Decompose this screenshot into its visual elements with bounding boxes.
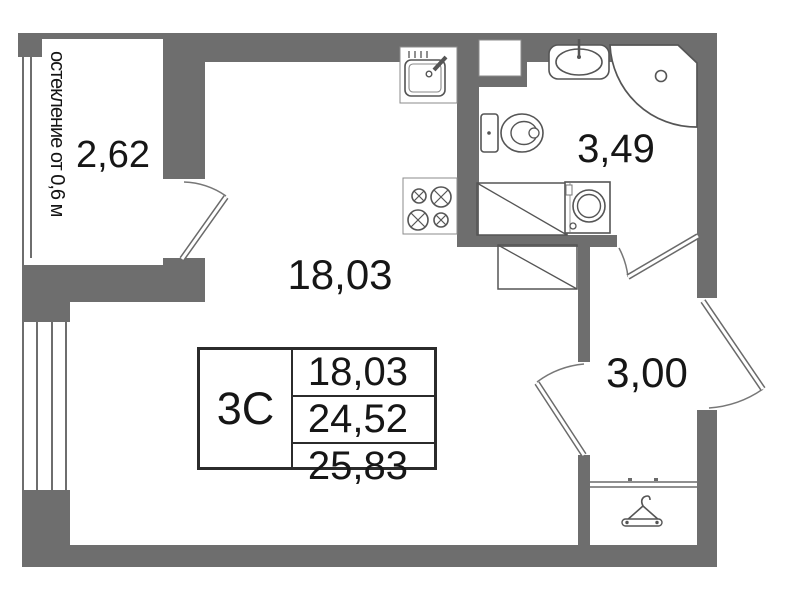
- hallway-area-label: 3,00: [604, 351, 690, 395]
- unit-type-cell: 3С: [200, 350, 293, 467]
- washing-machine-icon: [565, 182, 610, 233]
- unit-legend-table: 3С 18,03 24,52 25,83: [197, 347, 437, 470]
- hanger-icon: [622, 496, 662, 526]
- corner-shower-icon: [610, 45, 697, 127]
- closet: [590, 478, 697, 526]
- balcony-area-label: 2,62: [70, 134, 156, 176]
- room-hall-door: [537, 364, 584, 455]
- wall-west-upper: [22, 302, 70, 322]
- bathroom-area-label: 3,49: [573, 127, 659, 171]
- wall-kitchen: [457, 39, 479, 247]
- wall-shaft-bottom: [475, 75, 527, 87]
- bathroom-sink-icon: [549, 39, 609, 79]
- stove-icon: [403, 178, 457, 234]
- wall-hall-upper: [578, 247, 590, 362]
- entrance-door: [703, 301, 763, 408]
- unit-areas-column: 18,03 24,52 25,83: [293, 350, 434, 467]
- wall-right-upper: [697, 33, 717, 298]
- bathroom-door: [619, 236, 698, 277]
- wall-shaft-right: [521, 39, 527, 77]
- area-row-total-no-balcony: 24,52: [293, 395, 434, 442]
- window-west: [23, 322, 66, 490]
- wall-balcony-divider: [163, 38, 205, 179]
- wall-hall-lower: [578, 455, 590, 547]
- wall-right-lower: [697, 410, 717, 547]
- wall-west-lower: [22, 490, 70, 547]
- wall-bottom: [22, 545, 717, 567]
- toilet-icon: [481, 114, 543, 152]
- area-row-total: 25,83: [293, 442, 434, 489]
- living-room-area-label: 18,03: [258, 251, 422, 299]
- balcony-glazing-note: остекление от 0,6 м: [42, 51, 72, 263]
- reserved-area: [498, 245, 577, 289]
- duct-shaft: [479, 40, 521, 76]
- floor-plan-drawing: [0, 0, 799, 600]
- wall-corner-top-left: [18, 33, 42, 57]
- balcony-door: [182, 182, 226, 259]
- balcony-glazing: [23, 39, 31, 265]
- area-row-living: 18,03: [293, 350, 434, 395]
- shower-tray-area: [477, 183, 567, 235]
- kitchen-sink-icon: [400, 47, 457, 103]
- floor-plan: остекление от 0,6 м 2,62 18,03 3,49 3,00…: [0, 0, 799, 600]
- wall-balcony-south: [22, 265, 205, 302]
